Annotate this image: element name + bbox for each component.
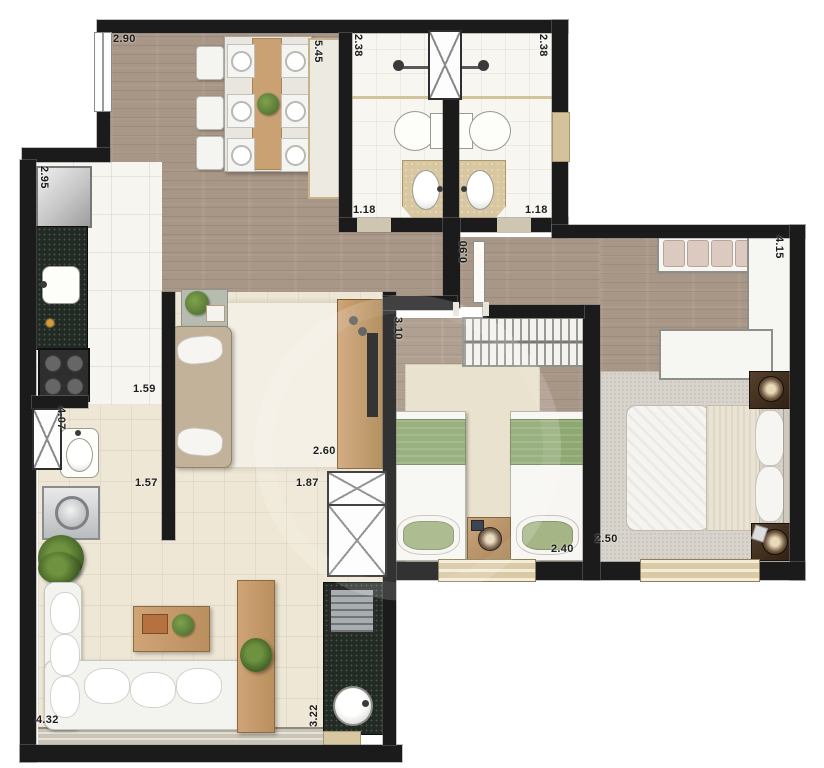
folded-clothes-icon [687,240,709,267]
grill-icon [329,588,375,634]
floor-plan: 2.90 5.45 2.38 2.38 1.18 1.18 0.90 2.95 … [0,0,824,768]
toilet-icon [469,111,511,151]
ventilation-shaft-icon [327,471,387,506]
dim-label: 1.18 [353,204,376,216]
ventilation-shaft-icon [327,504,387,577]
tray-icon [206,305,225,322]
kitchen-sink-icon [42,266,80,304]
wall [97,20,568,33]
sofa-cushion [84,668,130,704]
bed-pillow [755,466,785,522]
shower-head-icon [478,60,489,71]
place-setting-icon [227,138,255,172]
ventilation-shaft-icon [428,30,462,100]
dim-label: 2.60 [313,445,336,457]
washing-machine-icon [42,486,100,540]
decor-icon [358,327,367,336]
wall [383,296,457,310]
wall [20,745,402,762]
plant-icon [172,614,194,636]
dim-label: 3.10 [392,317,404,340]
window-icon [438,559,536,582]
dim-label: 1.59 [133,383,156,395]
dining-chair [196,46,224,80]
terrace-step [323,731,361,746]
faucet-icon [461,186,467,192]
bed-blanket [391,419,466,465]
shower-head-icon [393,60,404,71]
sofa-cushion [50,676,80,718]
cooktop-icon [38,348,90,402]
bed-cushion [403,521,454,550]
folded-clothes-icon [711,240,733,267]
dim-label: 0.90 [458,240,470,263]
sofa-cushion [176,668,222,704]
door-frame [483,302,489,316]
door-opening [497,218,531,232]
door-opening [357,218,391,232]
sofa-cushion [130,672,176,708]
centerpiece-plant-icon [257,93,279,115]
dim-label: 2.50 [595,533,618,545]
dim-label: 2.90 [113,33,136,45]
window-icon [640,559,760,582]
bed-pillow [755,410,785,466]
dim-label: 1.18 [525,204,548,216]
lamp-icon [758,376,784,402]
plant-icon [38,552,80,584]
hall-door-leaf [473,241,485,303]
dim-label: 5.45 [312,40,324,63]
faucet-icon [40,281,47,288]
plant-icon [240,638,272,672]
dim-label: 4.07 [55,407,67,430]
place-setting-icon [281,44,309,78]
dim-label: 1.87 [296,477,319,489]
place-setting-icon [227,44,255,78]
dim-label: 2.38 [352,34,364,57]
decor-icon [349,316,358,325]
wall [443,218,460,308]
dim-label: 2.38 [537,34,549,57]
wall [790,225,805,580]
wall [162,292,175,540]
door-frame [453,302,459,316]
double-bed-blanket [706,405,760,531]
dim-label: 3.22 [308,704,320,727]
bed-blanket [510,419,585,465]
wall [339,33,352,220]
dim-label: 2.95 [38,166,50,189]
decor-flowers-icon [44,318,56,328]
dim-label: 4.32 [36,714,59,726]
place-setting-icon [281,138,309,172]
wall-niche [552,112,570,162]
wall [552,225,805,238]
sofa-cushion [50,592,80,634]
phone-icon [471,520,484,531]
wardrobe-icon [462,317,588,367]
dim-label: 2.40 [551,543,574,555]
tv-room-rug [227,302,341,468]
tv-icon [367,333,378,417]
window-icon [94,32,112,112]
dim-label: 1.57 [135,477,158,489]
sink-icon [466,170,494,210]
folded-clothes-icon [663,240,685,267]
wall [443,96,459,218]
faucet-icon [75,430,81,436]
tray-icon [142,614,168,634]
shower-partition-line [457,96,553,99]
dim-label: 4.15 [773,236,785,259]
sofa-cushion [50,634,80,676]
dining-chair [196,96,224,130]
faucet-icon [362,700,369,707]
sink-icon [412,170,440,210]
dining-chair [196,136,224,170]
place-setting-icon [227,94,255,128]
place-setting-icon [281,94,309,128]
double-bed-duvet [626,405,710,531]
shower-arm-icon [400,66,428,69]
wall [483,305,584,318]
laundry-tub-basin [66,438,93,472]
